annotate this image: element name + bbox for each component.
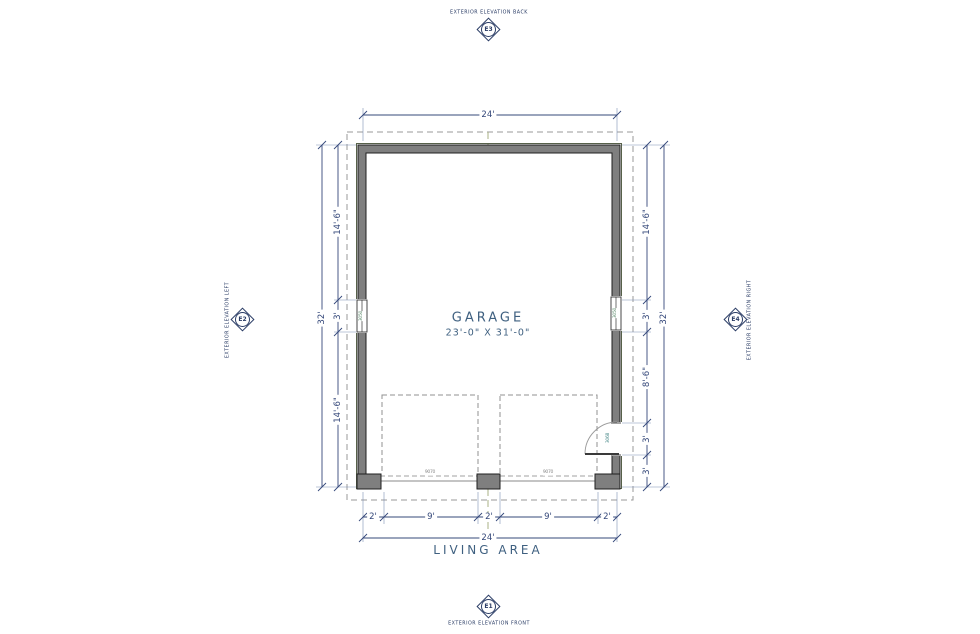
dim-left-chain-0: 14'-6" — [334, 207, 343, 237]
dim-bottom-chain-3: 9' — [542, 513, 554, 522]
dim-right-overall: 32' — [660, 309, 669, 326]
elevation-front-id: E1 — [484, 603, 492, 610]
elevation-right-id: E4 — [731, 316, 739, 323]
entry-door-size: 3068 — [607, 433, 612, 443]
room-size: 23'-0" X 31'-0" — [443, 328, 534, 339]
dim-top-overall: 24' — [479, 111, 496, 120]
elevation-back-id: E3 — [484, 26, 492, 33]
garage-door-right-size: 9070 — [543, 471, 553, 476]
dim-left-chain-2: 14'-6" — [334, 395, 343, 425]
elevation-back-label: EXTERIOR ELEVATION BACK — [450, 11, 528, 16]
dim-right-chain-0: 14'-6" — [643, 207, 652, 237]
room-name: GARAGE — [449, 311, 527, 326]
dim-right-chain-3: 3' — [643, 433, 652, 445]
dim-bottom-overall: 24' — [479, 534, 496, 543]
window-right-size: 3050 — [614, 308, 619, 318]
dim-right-chain-4: 3' — [643, 465, 652, 477]
dim-bottom-chain-2: 2' — [483, 513, 495, 522]
floor-plan-sheet: GARAGE 23'-0" X 31'-0" LIVING AREA 24' 3… — [0, 0, 980, 634]
elevation-front-label: EXTERIOR ELEVATION FRONT — [448, 622, 530, 627]
dim-left-overall: 32' — [318, 309, 327, 326]
dim-bottom-chain-4: 2' — [601, 513, 613, 522]
dim-left-chain-1: 3' — [334, 310, 343, 322]
area-label: LIVING AREA — [433, 543, 542, 557]
window-left-size: 3050 — [360, 311, 365, 321]
garage-door-openings — [357, 474, 620, 490]
elevation-left-label: EXTERIOR ELEVATION LEFT — [226, 282, 231, 358]
dim-right-chain-2: 8'-6" — [643, 365, 652, 389]
pier-left — [357, 474, 381, 489]
elevation-right-label: EXTERIOR ELEVATION RIGHT — [748, 280, 753, 360]
elevation-left-id: E2 — [238, 316, 246, 323]
dim-bottom-chain-0: 2' — [367, 513, 379, 522]
dim-bottom-chain-1: 9' — [425, 513, 437, 522]
pier-center — [477, 474, 500, 489]
dim-right-chain-1: 3' — [643, 310, 652, 322]
garage-door-left-size: 9070 — [425, 471, 435, 476]
pier-right — [595, 474, 620, 489]
